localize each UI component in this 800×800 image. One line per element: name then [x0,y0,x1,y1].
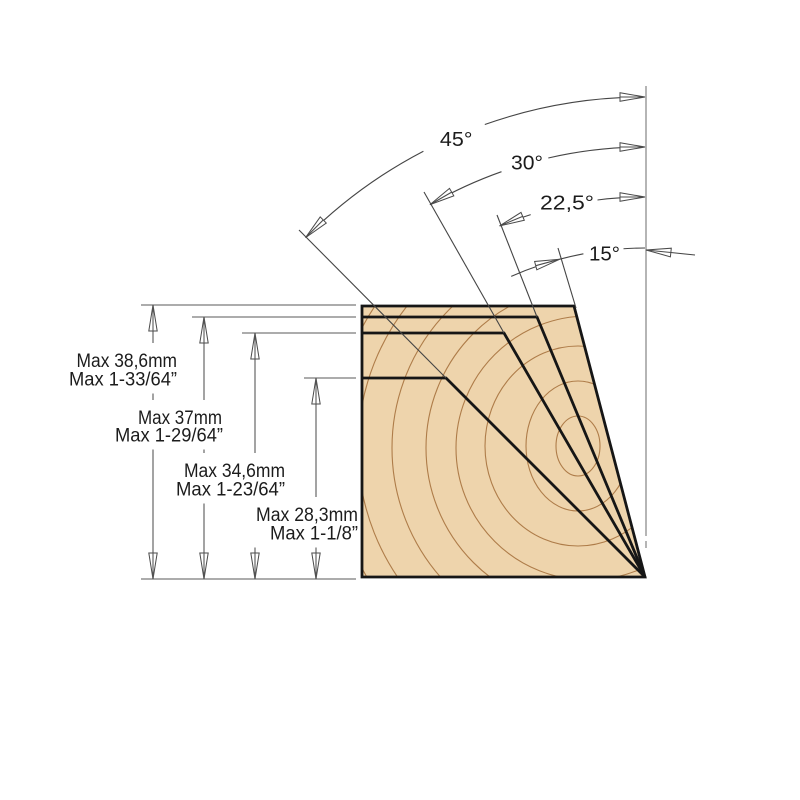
svg-text:Max 1-33/64”: Max 1-33/64” [69,370,177,391]
svg-text:45°: 45° [440,128,473,151]
svg-text:Max 1-29/64”: Max 1-29/64” [115,426,223,447]
svg-text:15°: 15° [589,243,620,266]
svg-text:Max 1-1/8”: Max 1-1/8” [270,524,358,545]
svg-text:22,5°: 22,5° [540,192,594,215]
svg-text:30°: 30° [511,152,543,175]
